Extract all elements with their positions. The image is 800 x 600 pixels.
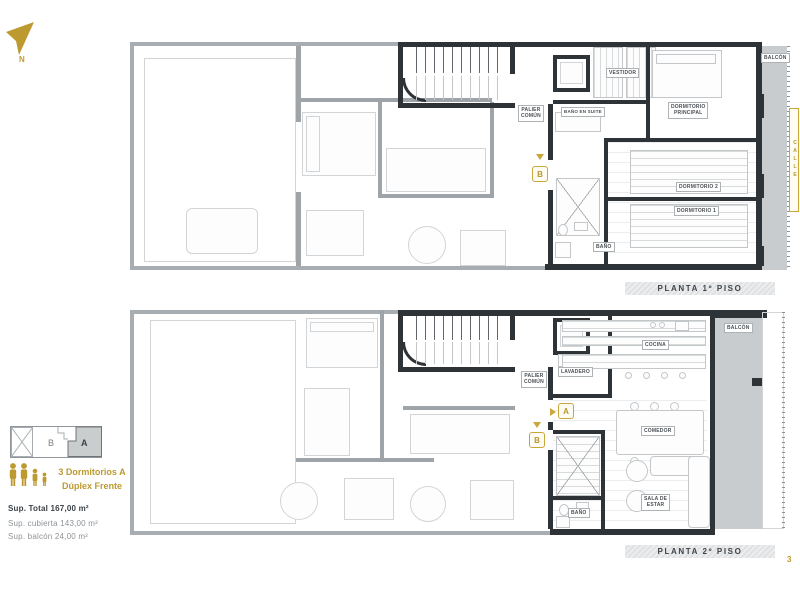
plan1-title-band: PLANTA 1º PISO — [625, 282, 775, 295]
sup-total: Sup. Total 167,00 m² — [8, 504, 89, 513]
wall-segment — [398, 310, 403, 372]
furniture-oven — [675, 321, 689, 331]
wall-segment — [490, 102, 494, 198]
room-label-dormitorio-principal: DORMITORIO PRINCIPAL — [668, 102, 708, 119]
room-label-dormitorio-1: DORMITORIO 1 — [674, 206, 719, 216]
room-label-balcon: BALCÓN — [724, 323, 753, 333]
furniture-sink — [574, 222, 588, 231]
wall-segment — [601, 434, 605, 498]
furniture-cooktop — [650, 322, 656, 328]
wall-segment — [296, 458, 434, 462]
wall-segment — [646, 42, 650, 138]
floor-plan-1: BALCÓN PALIER COMÚN VESTIDOR BAÑO EN SUI… — [130, 42, 792, 274]
furniture-bathroom — [410, 414, 510, 454]
wall-segment — [713, 310, 767, 318]
wall-segment — [553, 394, 612, 398]
arrow-right-icon — [550, 408, 556, 416]
furniture-pillow — [306, 116, 320, 172]
stairs-dashed — [416, 76, 504, 100]
plan2-title-band: PLANTA 2º PISO — [625, 545, 775, 558]
wall-segment — [756, 94, 764, 118]
wall-segment — [548, 190, 553, 264]
wall-segment — [380, 310, 384, 460]
furniture-pillow — [656, 54, 716, 64]
key-plan-unit-a-label: A — [81, 438, 88, 448]
furniture-cooktop — [659, 322, 665, 328]
wall-segment — [296, 192, 301, 266]
room-label-lavadero: LAVADERO — [558, 367, 593, 377]
common-stairs — [416, 47, 504, 73]
furniture-dining-table — [186, 208, 258, 254]
furniture-stool — [625, 372, 632, 379]
room-label-cocina: COCINA — [642, 340, 669, 350]
furniture-stool — [661, 372, 668, 379]
room-label-palier: PALIER COMÚN — [521, 371, 547, 388]
furniture-round-table — [408, 226, 446, 264]
sup-balcon: Sup. balcón 24,00 m² — [8, 532, 88, 541]
furniture-armchair — [626, 460, 648, 482]
unit-title: 3 Dormitorios A Dúplex Frente — [46, 466, 138, 494]
entrance-marker-b: B — [529, 432, 545, 448]
room-label-bano: BAÑO — [568, 508, 590, 518]
room-label-bano-suite: BAÑO EN SUITE — [561, 107, 605, 117]
furniture-desk — [470, 480, 514, 520]
plan1-balcony — [762, 46, 787, 270]
wall-segment — [553, 496, 605, 500]
furniture-chair — [670, 402, 679, 411]
room-label-vestidor: VESTIDOR — [606, 68, 639, 78]
furniture-toilet — [558, 224, 568, 236]
furniture-pillow — [310, 322, 374, 332]
wall-segment — [756, 174, 764, 198]
common-stairs — [416, 316, 504, 340]
unit-title-line2: Dúplex Frente — [46, 480, 138, 494]
wall-segment — [553, 100, 646, 104]
furniture-counter — [562, 336, 706, 346]
north-arrow-icon — [6, 22, 36, 58]
label-line: PRINCIPAL — [671, 110, 705, 116]
furniture-round-table — [280, 482, 318, 520]
balcony-projection — [762, 312, 784, 529]
stairs-dashed — [416, 342, 504, 364]
page-number: 3 — [787, 555, 791, 564]
wall-segment — [756, 246, 764, 266]
plan2-terrace — [150, 320, 296, 524]
arrow-down-icon — [533, 422, 541, 428]
wall-segment — [378, 102, 382, 198]
wall-segment — [545, 264, 762, 270]
wall-segment — [378, 194, 494, 198]
brochure-page: N — [0, 0, 800, 600]
elevator-cab — [560, 62, 583, 84]
wall-segment — [510, 310, 515, 340]
key-plan-unit-b-label: B — [48, 438, 54, 448]
label-line: COMÚN — [521, 113, 541, 119]
furniture-round-table — [410, 486, 446, 522]
wall-segment — [398, 103, 515, 108]
wall-segment — [553, 430, 605, 434]
room-label-palier: PALIER COMÚN — [518, 105, 544, 122]
key-plan: B A — [10, 424, 102, 460]
balcony-railing — [782, 312, 785, 529]
room-label-dormitorio-2: DORMITORIO 2 — [676, 182, 721, 192]
arrow-down-icon — [536, 154, 544, 160]
north-label: N — [19, 55, 25, 64]
street-label: CALLE — [789, 108, 799, 212]
furniture-sofa — [306, 210, 364, 256]
sup-cubierta: Sup. cubierta 143,00 m² — [8, 519, 98, 528]
wall-segment — [548, 104, 553, 160]
label-line: ESTAR — [644, 502, 667, 508]
room-label-comedor: COMEDOR — [641, 426, 675, 436]
furniture-desk — [460, 230, 506, 266]
wall-segment — [601, 500, 605, 529]
stairs-diagonal — [557, 437, 599, 495]
entrance-marker-b: B — [532, 166, 548, 182]
furniture-bed — [304, 388, 350, 456]
label-line: COMÚN — [524, 379, 544, 385]
furniture-sofa — [344, 478, 394, 520]
entrance-marker-a: A — [558, 403, 574, 419]
furniture-chair — [650, 402, 659, 411]
wall-segment — [403, 406, 515, 410]
wall-segment — [510, 42, 515, 74]
furniture-stool — [643, 372, 650, 379]
furniture-stool — [679, 372, 686, 379]
wall-segment — [752, 378, 762, 386]
furniture-bathroom — [386, 148, 486, 192]
wall-segment — [398, 367, 515, 372]
unit-title-line1: 3 Dormitorios A — [46, 466, 138, 480]
floor-plan-2: BALCÓN PALIER COMÚN LAVADERO COCINA COME… — [130, 310, 792, 542]
room-label-bano: BAÑO — [593, 242, 615, 252]
wall-segment — [296, 46, 301, 122]
furniture-chair — [630, 402, 639, 411]
duplex-stairs — [556, 436, 600, 496]
wall-segment — [398, 42, 403, 108]
furniture-shower — [555, 242, 571, 258]
room-label-sala-de-estar: SALA DE ESTAR — [641, 494, 670, 511]
room-label-balcon: BALCÓN — [761, 53, 790, 63]
wall-segment — [550, 529, 715, 535]
furniture-sofa — [688, 456, 710, 528]
plan2-balcony — [715, 316, 762, 529]
